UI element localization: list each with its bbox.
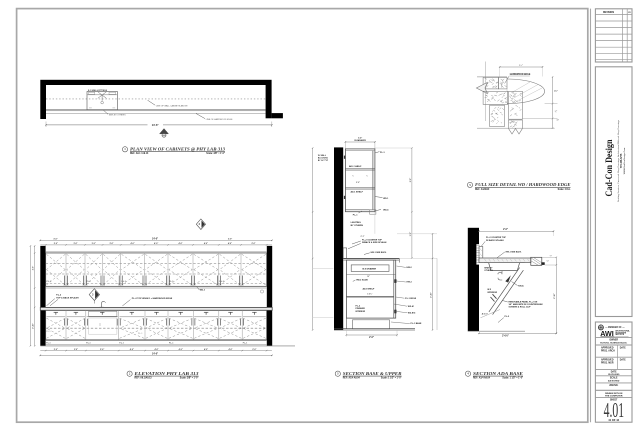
svg-text:JOB NO.: JOB NO. <box>609 385 619 387</box>
svg-text:ELEVATION PHY LAB 313: ELEVATION PHY LAB 313 <box>133 371 199 376</box>
svg-text:4'-0": 4'-0" <box>178 242 182 245</box>
svg-text:14'-6": 14'-6" <box>152 124 160 127</box>
svg-text:4'-0": 4'-0" <box>204 242 208 245</box>
svg-text:ADJ. SHELF: ADJ. SHELF <box>349 165 362 168</box>
svg-text:REF: A9.1/A9.13: REF: A9.1/A9.13 <box>135 377 153 380</box>
svg-text:P.L-1: P.L-1 <box>138 333 142 335</box>
svg-text:4'-0": 4'-0" <box>130 348 134 351</box>
svg-text:4'-0": 4'-0" <box>228 242 232 245</box>
svg-text:REVISION: REVISION <box>603 12 614 14</box>
svg-text:ADJ. SHELF: ADJ. SHELF <box>351 191 364 194</box>
svg-text:2'-0": 2'-0" <box>54 349 58 351</box>
svg-text:HW-1 SEE ELEV.: HW-1 SEE ELEV. <box>371 252 387 254</box>
svg-text:SCALE: SCALE <box>610 377 618 380</box>
svg-text:770-406-6775: 770-406-6775 <box>620 153 623 168</box>
svg-text:P.L-1: P.L-1 <box>169 281 173 283</box>
svg-text:Cad-Con Design: Cad-Con Design <box>605 139 615 197</box>
svg-text:Scale: 3/8" = 1'-0": Scale: 3/8" = 1'-0" <box>206 153 225 155</box>
svg-text:DATE: DATE <box>620 359 626 362</box>
svg-text:¾": ¾" <box>550 254 553 257</box>
svg-text:REF: A9.1 / A9.13: REF: A9.1 / A9.13 <box>130 152 149 155</box>
svg-text:REMOVABLE PANEL P.L-2 ON: REMOVABLE PANEL P.L-2 ON <box>509 300 538 303</box>
svg-text:WD-1: WD-1 <box>383 198 389 200</box>
svg-text:BY OTHERS: BY OTHERS <box>351 225 364 227</box>
svg-text:3'-0": 3'-0" <box>109 243 113 245</box>
svg-text:HW-3: HW-3 <box>407 282 413 284</box>
svg-text:DRAWN WITH IN: DRAWN WITH IN <box>605 392 623 395</box>
svg-text:3'-0": 3'-0" <box>92 243 96 245</box>
svg-text:WD-4: WD-4 <box>383 209 389 212</box>
svg-text:4'-0": 4'-0" <box>204 348 208 351</box>
svg-text:HW-1 SEE ELEV.: HW-1 SEE ELEV. <box>506 251 522 253</box>
svg-text:TOP & BACK SPLASH: TOP & BACK SPLASH <box>56 296 79 299</box>
svg-text:2'-6": 2'-6" <box>33 266 35 270</box>
svg-text:2'-10": 2'-10" <box>554 293 556 299</box>
svg-text:4'-0": 4'-0" <box>179 348 183 351</box>
svg-text:W/ BACK SPLASH: W/ BACK SPLASH <box>486 239 504 242</box>
svg-text:⅞": ⅞" <box>556 119 559 122</box>
svg-text:P.L-1: P.L-1 <box>46 331 50 333</box>
svg-text:LINE OF HARDWOOD EDGE: LINE OF HARDWOOD EDGE <box>206 118 233 121</box>
svg-text:1¾": 1¾" <box>519 64 523 67</box>
svg-text:P.L-1: P.L-1 <box>46 342 50 344</box>
svg-text:P.L-1: P.L-1 <box>86 342 90 344</box>
svg-text:3'-0": 3'-0" <box>73 243 77 245</box>
svg-text:2⅞": 2⅞" <box>554 90 558 93</box>
svg-text:HARDWOOD EDGE: HARDWOOD EDGE <box>510 73 531 76</box>
svg-text:HW-2 SLIDE: HW-2 SLIDE <box>356 279 368 281</box>
svg-text:2'-0": 2'-0" <box>251 243 255 245</box>
svg-text:P.L-1: P.L-1 <box>243 342 247 344</box>
svg-text:REF: A1/4 A9.04: REF: A1/4 A9.04 <box>343 377 361 380</box>
svg-text:4'-0": 4'-0" <box>154 242 158 245</box>
svg-text:APPROVED: APPROVED <box>601 346 614 349</box>
svg-text:ADJ SHELF: ADJ SHELF <box>363 287 376 290</box>
svg-text:4'-0": 4'-0" <box>131 242 135 245</box>
svg-text:4'-0": 4'-0" <box>228 348 232 351</box>
svg-text:Scale: 1 1/2" = 1'-0": Scale: 1 1/2" = 1'-0" <box>502 378 523 380</box>
svg-text:P.L-1 BASE: P.L-1 BASE <box>411 322 422 325</box>
svg-text:WD-1: WD-1 <box>200 289 206 291</box>
svg-text:P.L-1: P.L-1 <box>121 281 125 283</box>
svg-text:P.L-1: P.L-1 <box>86 281 90 283</box>
svg-text:2'-10": 2'-10" <box>33 323 35 329</box>
svg-text:B.S DRAWER: B.S DRAWER <box>363 267 377 270</box>
svg-text:3'-0": 3'-0" <box>74 349 78 351</box>
svg-text:E-1 SINK & FITTINGS: E-1 SINK & FITTINGS <box>88 90 108 92</box>
svg-text:INTERIOR: INTERIOR <box>356 311 366 313</box>
svg-text:INTERIOR: INTERIOR <box>487 292 497 294</box>
svg-text:Scale: 3/8" = 1'-0": Scale: 3/8" = 1'-0" <box>180 378 199 380</box>
svg-text:APPROVED: APPROVED <box>601 359 614 362</box>
svg-text:OWNER: OWNER <box>609 339 618 341</box>
svg-text:14'-6": 14'-6" <box>152 238 158 241</box>
svg-text:BY GC TYP: BY GC TYP <box>318 160 329 162</box>
svg-text:14'-6": 14'-6" <box>152 353 158 356</box>
svg-text:Scale: FULL: Scale: FULL <box>558 189 572 191</box>
svg-text:P.L-1: P.L-1 <box>47 281 51 283</box>
svg-text:2'-0": 2'-0" <box>369 337 374 339</box>
svg-text:2'-0": 2'-0" <box>54 243 58 245</box>
svg-text:REF: A1/9910: REF: A1/9910 <box>475 188 490 191</box>
svg-text:KM-A: KM-A <box>518 284 524 287</box>
svg-text:P.L-2 TOP W/HW-1 + HARDWOOD ED: P.L-2 TOP W/HW-1 + HARDWOOD EDGE <box>132 297 173 300</box>
svg-text:WD-E/G: WD-E/G <box>408 312 416 314</box>
svg-text:REF: A1/4 A9.04: REF: A1/4 A9.04 <box>473 377 491 380</box>
svg-text:4'-0": 4'-0" <box>154 348 158 351</box>
svg-text:W/BACK & SIDE SPLASH: W/BACK & SIDE SPLASH <box>362 241 387 244</box>
svg-text:P.L-1 EDGE: P.L-1 EDGE <box>405 298 417 300</box>
svg-text:PROJ. ARCH: PROJ. ARCH <box>601 349 615 352</box>
svg-text:CLEARANCE: CLEARANCE <box>354 139 367 142</box>
svg-text:⅝": ⅝" <box>555 110 558 113</box>
svg-text:41 OF 44: 41 OF 44 <box>608 418 619 422</box>
svg-text:SCREWS & ROLL CLIP: SCREWS & ROLL CLIP <box>509 307 532 309</box>
svg-text:P.L-1: P.L-1 <box>169 342 173 344</box>
svg-text:INSTITUTE: INSTITUTE <box>615 334 625 336</box>
svg-text:Scale: 1 1/2" = 1'-0": Scale: 1 1/2" = 1'-0" <box>381 378 402 380</box>
svg-text:SINK BY OTHERS: SINK BY OTHERS <box>109 114 126 116</box>
svg-text:SECTION ADA BASE: SECTION ADA BASE <box>473 371 523 376</box>
svg-text:P.L-1: P.L-1 <box>119 342 123 344</box>
svg-text:WD-M: WD-M <box>408 306 414 308</box>
svg-text:2'-6": 2'-6" <box>356 182 360 184</box>
svg-text:⅛": ⅛" <box>547 260 550 262</box>
svg-text:2'-10": 2'-10" <box>430 292 432 298</box>
svg-text:OTHERS: OTHERS <box>484 270 493 272</box>
svg-text:10": 10" <box>367 276 370 278</box>
svg-text:3'-0": 3'-0" <box>53 239 57 241</box>
svg-text:P.L-2: P.L-2 <box>56 295 62 297</box>
svg-text:P.L-1: P.L-1 <box>219 281 223 283</box>
svg-text:FULL SIZE DETAIL WD / HARDWOO: FULL SIZE DETAIL WD / HARDWOOD EDGE <box>475 182 571 187</box>
svg-text:3'-0": 3'-0" <box>228 239 232 241</box>
svg-text:PLAN VIEW OF CABINETS @ PHY LA: PLAN VIEW OF CABINETS @ PHY LAB 313 <box>130 147 226 152</box>
svg-text:Drafting Services, Casework Sh: Drafting Services, Casework Shop Drawing… <box>617 120 620 202</box>
svg-text:DATE: DATE <box>611 370 617 373</box>
svg-text:1'-5⅜": 1'-5⅜" <box>367 294 372 296</box>
svg-text:AS NOTED: AS NOTED <box>608 380 620 383</box>
svg-text:DATE: DATE <box>620 346 626 349</box>
svg-text:5'-6": 5'-6" <box>100 349 104 351</box>
svg-text:2'-1": 2'-1" <box>361 236 365 238</box>
svg-text:2'-0": 2'-0" <box>503 229 508 231</box>
svg-text:PROJ. MGR: PROJ. MGR <box>601 363 614 365</box>
svg-text:2'-0": 2'-0" <box>410 178 412 182</box>
svg-text:1/4" MASONITE W/ COUNTERSUNK: 1/4" MASONITE W/ COUNTERSUNK <box>509 303 544 306</box>
svg-text:SCHOOL SCIENCE BLDG.: SCHOOL SCIENCE BLDG. <box>600 342 627 344</box>
svg-text:WWW.CadConDesign.Com: WWW.CadConDesign.Com <box>624 148 626 175</box>
svg-text:SECTION BASE & UPPER: SECTION BASE & UPPER <box>343 371 402 376</box>
svg-text:2'-0": 2'-0" <box>252 349 256 351</box>
svg-text:LINE OF WALL CABINETS ABOVE: LINE OF WALL CABINETS ABOVE <box>156 105 188 108</box>
svg-text:HW-2: HW-2 <box>407 267 413 269</box>
